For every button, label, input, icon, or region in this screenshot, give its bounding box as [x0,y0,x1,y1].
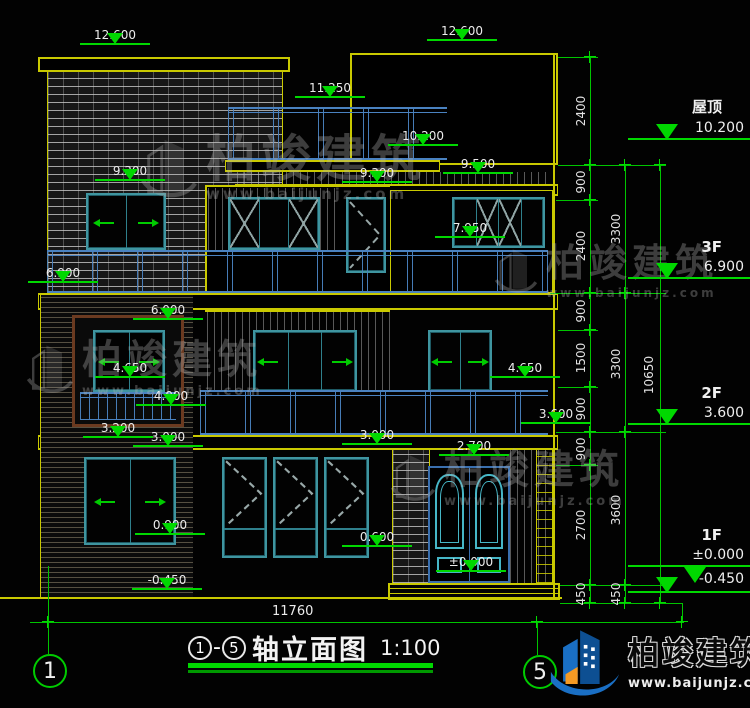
level-marker: -0.450 [132,574,202,603]
dim-label: 900 [574,171,588,194]
dim-label: 3300 [609,349,623,380]
level-marker: 2.700 [439,440,509,469]
elevation-triangle-icon [466,444,482,469]
level-marker: 6.900 [28,267,98,296]
slide-arrow-icon [264,361,278,363]
level-marker: 0.900 [135,519,205,548]
elevation-triangle-icon [656,409,678,444]
1f-window-1 [222,457,267,558]
casement-swing-icon [275,459,316,528]
level-marker: 12.600 [80,29,150,58]
slide-arrow-icon [468,361,482,363]
3f-window-left [228,197,320,250]
level-marker: 11.250 [295,82,365,111]
brand-name: 柏竣建筑 [628,628,750,673]
elevation-triangle-icon [462,226,478,251]
floor-marker-2f: 2F 3.600 [628,384,750,444]
2f-mid-window-a [253,330,357,392]
elevation-triangle-icon [548,412,564,437]
dim-label: 3600 [609,495,623,526]
dim-label: 1500 [574,343,588,374]
level-marker: 9.500 [443,158,513,187]
title-underline-2 [188,670,433,673]
elevation-triangle-icon [369,171,385,196]
elevation-triangle-icon [369,535,385,560]
tower-roof-slab [38,57,290,72]
level-marker: 4.650 [95,362,165,391]
elevation-triangle-icon [470,162,486,187]
slide-arrow-icon [438,361,452,363]
level-marker: 6.000 [133,304,203,333]
bottom-dim-text: 11760 [272,604,313,619]
level-marker: 3.000 [342,429,412,458]
elevation-triangle-icon [454,29,470,54]
level-marker: 3.600 [521,408,591,437]
dim-chain-mid [625,165,626,603]
elevation-triangle-icon [369,433,385,458]
elevation-triangle-icon [55,271,71,296]
dim-label: 450 [574,583,588,606]
dim-label: 2700 [574,510,588,541]
axis-end-bubble: 5 [222,636,246,660]
elevation-triangle-icon [656,263,678,298]
floor-marker-roof: 屋顶 10.200 [628,96,750,159]
title-underline [188,663,433,668]
title-scale: 1:100 [380,636,441,660]
brand-logo: 柏竣建筑 www.baijunjz.com [546,620,750,708]
level-marker: 12.600 [427,25,497,54]
entrance-ladder [536,450,553,583]
elevation-triangle-icon [122,366,138,391]
level-marker: 4.000 [136,390,206,419]
slide-arrow-icon [138,222,152,224]
dim-label: 450 [609,583,623,606]
2f-mid-window-b [428,330,492,392]
level-marker: 9.300 [95,165,165,194]
level-marker: 7.950 [435,222,505,251]
elevation-triangle-icon [160,435,176,460]
level-marker: 9.300 [342,167,412,196]
elevation-triangle-icon [107,33,123,58]
1f-window-2 [273,457,318,558]
level-marker: 0.600 [342,531,412,560]
ground-line [0,597,562,599]
dim-label: 3300 [609,214,623,245]
dim-label: 900 [574,438,588,461]
axis-start-bubble: 1 [188,636,212,660]
elevation-triangle-icon [163,394,179,419]
slide-arrow-icon [145,501,159,503]
elevation-triangle-icon [159,578,175,603]
level-marker: 10.200 [388,130,458,159]
3f-balcony-railing [47,250,548,293]
elevation-triangle-icon [415,134,431,159]
casement-swing-icon [224,459,265,528]
level-marker: ±0.000 [436,556,506,585]
axis-bubble-1: 1 [33,654,67,688]
slide-arrow-icon [332,361,346,363]
axis-line-1 [48,566,49,654]
ext-line [558,165,666,166]
elevation-triangle-icon [110,426,126,451]
elevation-triangle-icon [463,560,479,585]
brand-logo-icon [546,620,624,708]
elevation-triangle-icon [322,86,338,111]
elevation-triangle-icon [656,577,678,612]
brand-url: www.baijunjz.com [628,676,750,691]
elevation-drawing-canvas: 2400 900 2400 900 1500 900 900 2700 450 … [0,0,750,708]
floor-marker-1f: 1F ±0.000 -0.450 [628,526,750,612]
drawing-title: 1-5轴立面图1:100 [188,628,440,667]
dim-label: 900 [574,300,588,323]
2f-mid-wall-top [205,310,390,312]
floor-marker-3f: 3F 6.900 [628,238,750,298]
slide-arrow-icon [100,222,114,224]
slide-arrow-icon [101,501,115,503]
level-marker: 3.000 [133,431,203,460]
dim-label: 2400 [574,96,588,127]
tower-window [86,193,166,250]
casement-swing-icon [326,459,367,528]
entrance-pillar-brick [392,450,430,583]
elevation-triangle-icon [517,366,533,391]
building-right-edge [553,53,555,598]
elevation-triangle-icon [656,124,678,159]
elevation-triangle-icon [122,169,138,194]
title-text: 轴立面图 [252,635,368,666]
elevation-triangle-icon [160,308,176,333]
dim-label: 2400 [574,231,588,262]
elevation-triangle-icon [162,523,178,548]
level-marker: 4.650 [490,362,560,391]
